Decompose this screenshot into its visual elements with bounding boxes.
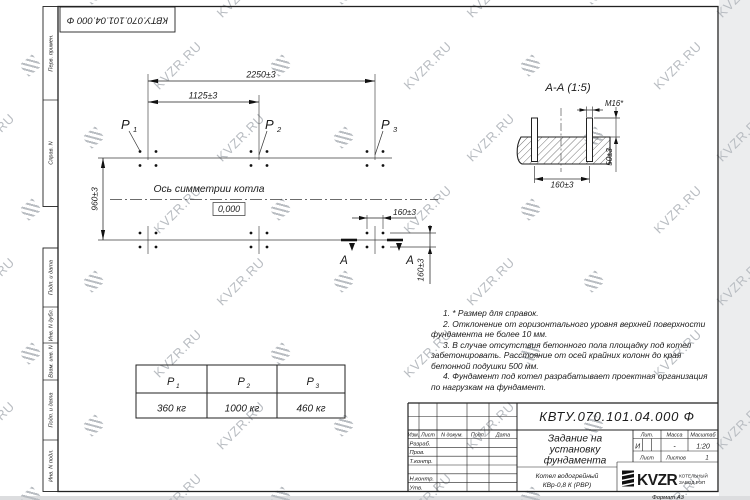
margin-label-podp-data-2: Подп. и дата <box>49 392 55 427</box>
top-stamp-doc-number: КВТУ.070.101.04.000 Ф <box>66 15 168 26</box>
dim-bolt-protrusion: 50±3 <box>605 148 614 166</box>
product-name-line1: Котел водогрейный <box>536 472 599 480</box>
technical-notes: 1. * Размер для справок. 2. Отклонение о… <box>431 308 719 392</box>
sheets-label: Листов <box>665 456 686 462</box>
point-label-p2-sub: 2 <box>276 125 282 134</box>
drawing-title-line1: Задание на <box>548 434 603 445</box>
scale-label: Масштаб <box>690 433 716 439</box>
anchor-bolt-right <box>587 118 593 162</box>
drawing-sheet: KVZR.RUKVZR.RUKVZR.RUKVZR.RUKVZR.RUKVZR.… <box>0 0 750 500</box>
point-label-p1-sub: 1 <box>133 125 137 134</box>
company-line1: КОТЕЛЬНЫЙ <box>679 472 708 479</box>
row-label-nkontr: Н.контр. <box>410 477 435 483</box>
note-4: 4. Фундамент под котел разрабатывает про… <box>431 371 719 392</box>
section-view-title: А-А (1:5) <box>544 82 590 94</box>
margin-label-vzam-inv: Взам. инв. N <box>49 344 55 378</box>
format-note: Формат А3 <box>652 495 684 500</box>
row-label-prov: Пров. <box>410 450 425 456</box>
table-header-p1: P <box>167 376 175 388</box>
company-name: KVZR <box>637 472 678 489</box>
table-value-p1-mass: 360 кг <box>157 404 186 415</box>
level-mark-value: 0,000 <box>218 204 240 214</box>
drawing-title-line3: фундамента <box>544 455 607 467</box>
table-header-p3-sub: 3 <box>316 383 320 390</box>
company-logo-icon <box>622 471 634 487</box>
drawing-canvas: Перв. примен. Справ. N Подп. и дата Инв.… <box>0 0 750 500</box>
row-label-utv: Утв. <box>409 486 423 492</box>
sheet-label: Лист <box>639 456 654 462</box>
table-header-p1-sub: 1 <box>176 383 180 390</box>
sheets-value: 1 <box>705 456 708 462</box>
row-label-tkontr: Т.контр. <box>410 459 433 465</box>
scale-value: 1:20 <box>696 444 710 451</box>
margin-column-labels: Перв. примен. Справ. N Подп. и дата Инв.… <box>49 15 169 482</box>
plan-view: 2250±3 1125±3 960±3 160±3 160±3 P 1 P 2 … <box>90 70 439 285</box>
margin-label-podp-data-1: Подп. и дата <box>49 260 55 295</box>
company-line2: ЗАВОД РЭП <box>679 480 705 485</box>
drawing-title-line2: установку <box>549 445 602 456</box>
title-block-doc-number: КВТУ.070.101.04.000 Ф <box>539 409 694 424</box>
table-header-p3: P <box>307 376 315 388</box>
point-label-p3-sub: 3 <box>393 125 398 134</box>
point-label-p2: P <box>265 117 274 132</box>
section-cut-marks <box>341 240 403 251</box>
bolt-thread-label: М16* <box>605 99 624 108</box>
note-3: 3. В случае отсутствия бетонного пола пл… <box>431 340 719 372</box>
dim-bolt-spacing-vertical: 160±3 <box>416 258 426 281</box>
header-cell-ndokum: N докум. <box>441 433 463 439</box>
note-1: 1. * Размер для справок. <box>431 308 719 319</box>
header-cell-list: Лист <box>420 433 435 439</box>
section-view: А-А (1:5) М16* 50±3 <box>517 82 624 190</box>
load-table: P 1 P 2 P 3 360 кг 1000 кг 460 кг <box>136 365 345 418</box>
lit-label: Лит. <box>640 433 654 439</box>
product-name-line2: КВр-0,8 К (РВР) <box>543 482 591 489</box>
table-header-p2-sub: 2 <box>246 383 251 390</box>
margin-label-perv-primen: Перв. примен. <box>49 34 55 71</box>
title-block: КВТУ.070.101.04.000 Ф Изм. Лист N докум.… <box>408 403 718 500</box>
header-cell-podp: Подп. <box>471 433 485 439</box>
margin-label-inv-podl: Инв. N подл. <box>49 449 55 482</box>
dim-half-width: 1125±3 <box>189 91 218 101</box>
point-label-p3: P <box>381 117 390 132</box>
mass-value: - <box>673 444 676 451</box>
header-cell-data: Дата <box>495 433 510 439</box>
margin-label-inv-dubl: Инв. N дубл. <box>49 309 55 341</box>
table-value-p3-mass: 460 кг <box>296 404 325 415</box>
table-header-p2: P <box>238 376 246 388</box>
mass-label: Масса <box>667 433 683 439</box>
section-letter-right: А <box>405 255 414 267</box>
header-cell-izm: Изм. <box>408 433 420 439</box>
dim-total-width: 2250±3 <box>245 70 275 80</box>
anchor-bolt-left <box>532 118 538 162</box>
row-label-razrab: Разраб. <box>410 441 431 447</box>
dim-section-bolt-spacing: 160±3 <box>550 180 573 190</box>
section-letter-left: А <box>339 255 348 267</box>
note-2: 2. Отклонение от горизонтального уровня … <box>431 319 719 340</box>
table-value-p2-mass: 1000 кг <box>225 404 260 415</box>
symmetry-axis-label: Ось симметрии котла <box>153 184 264 195</box>
dim-bolt-spacing-horizontal: 160±3 <box>393 207 416 217</box>
point-label-p1: P <box>121 117 130 132</box>
lit-value: И <box>635 444 641 451</box>
margin-label-sprav-n: Справ. N <box>49 140 55 164</box>
dim-depth: 960±3 <box>90 187 100 211</box>
